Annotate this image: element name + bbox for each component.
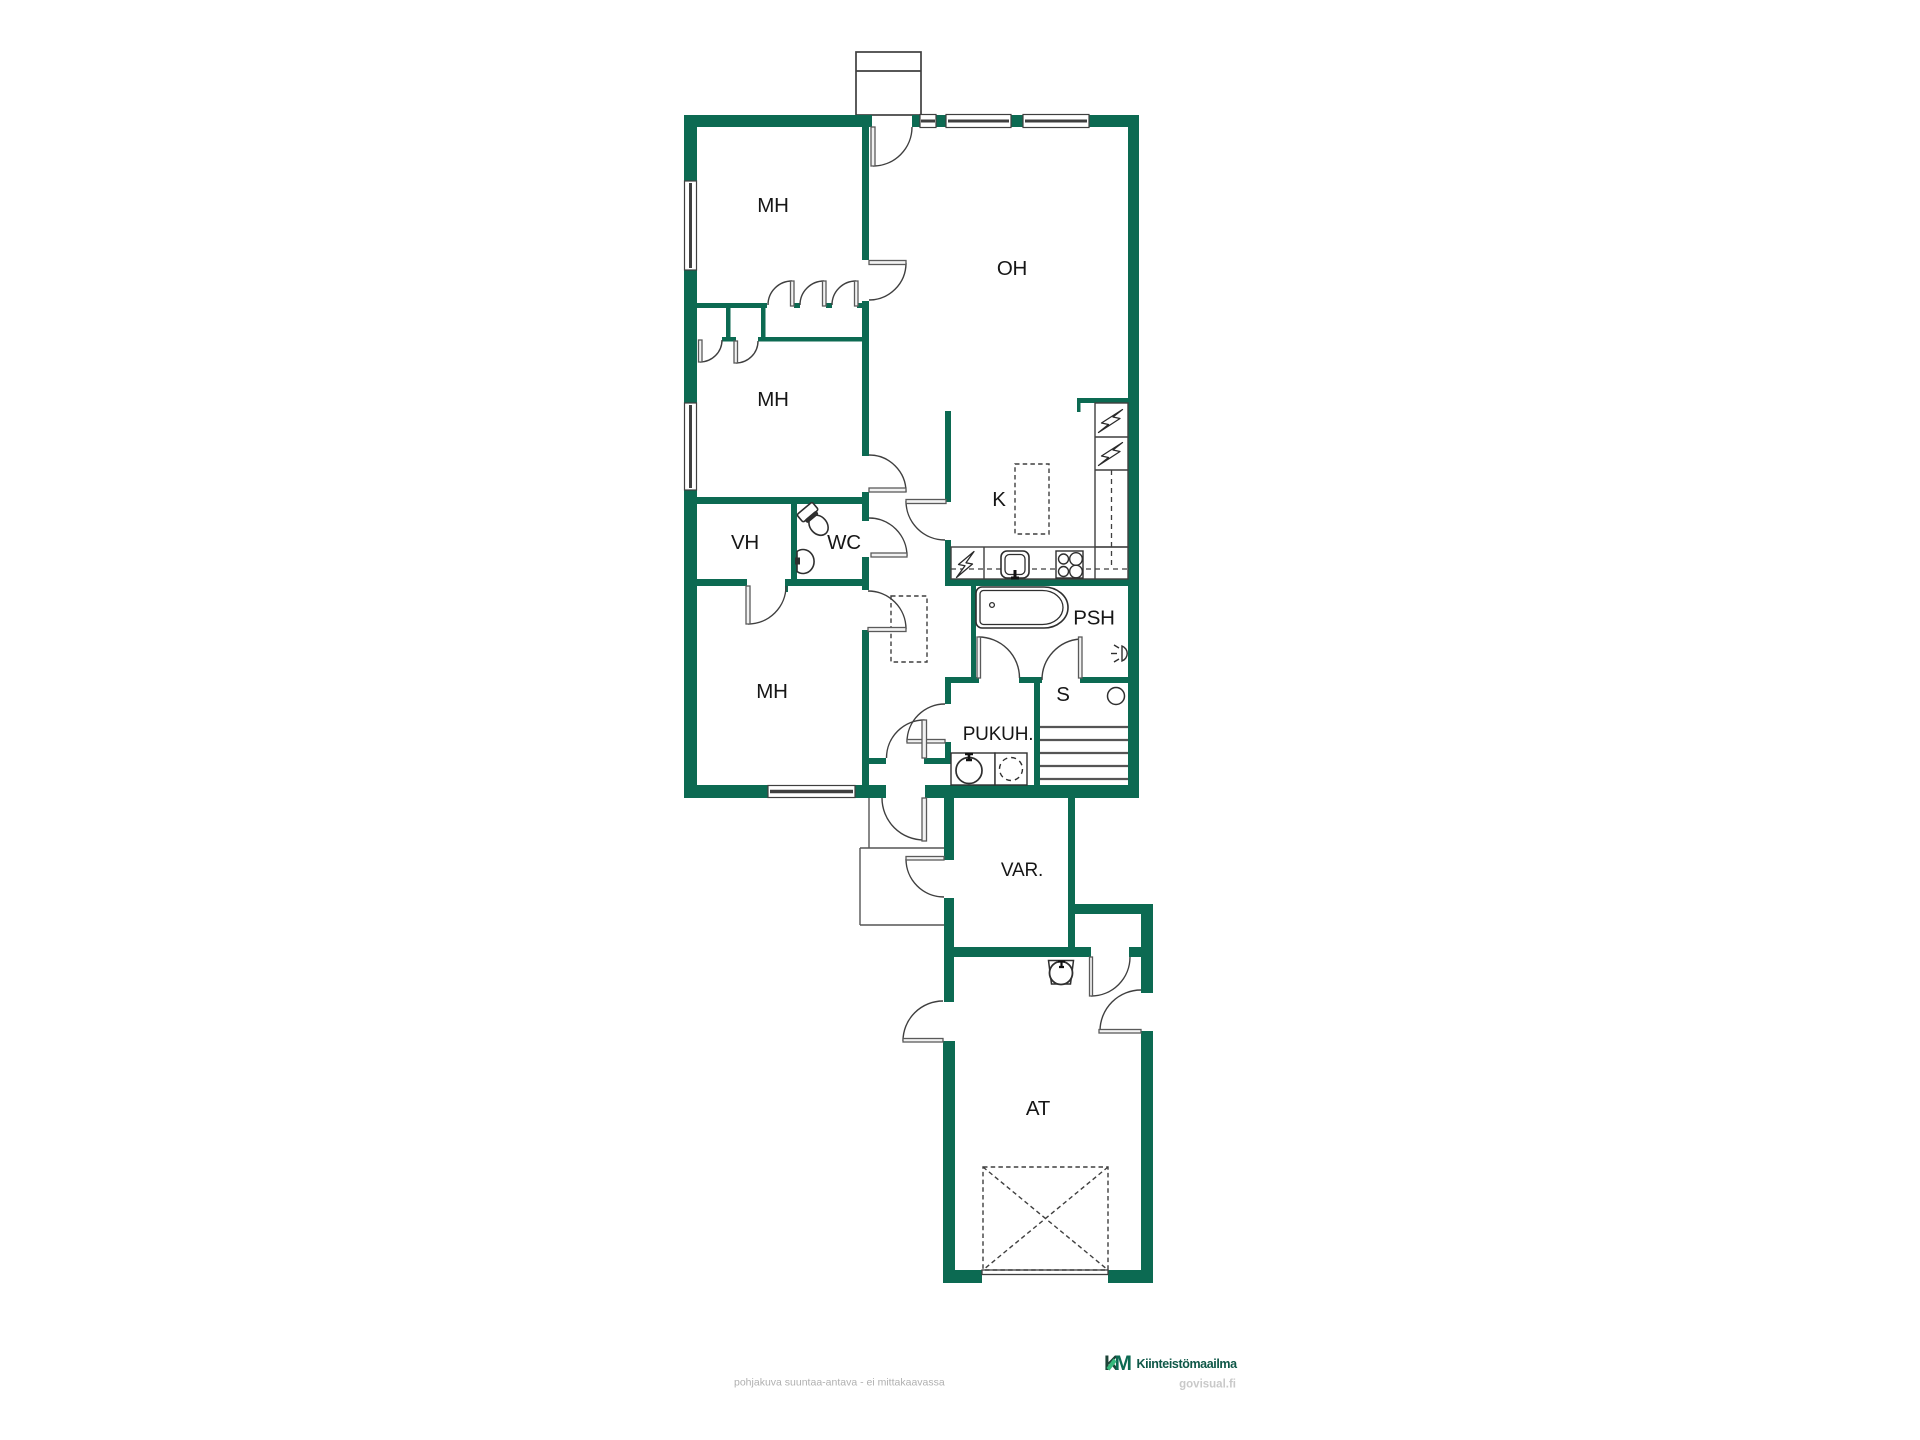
svg-text:govisual.fi: govisual.fi [1179, 1379, 1236, 1391]
svg-text:VH: VH [731, 531, 759, 554]
svg-text:PSH: PSH [1073, 607, 1115, 630]
svg-text:K: K [992, 488, 1006, 511]
svg-text:M: M [1115, 1352, 1133, 1375]
svg-text:MH: MH [757, 388, 788, 411]
svg-text:AT: AT [1026, 1097, 1051, 1120]
svg-text:VAR.: VAR. [1001, 860, 1043, 881]
svg-text:MH: MH [757, 194, 788, 217]
svg-text:WC: WC [827, 531, 861, 554]
svg-text:pohjakuva suuntaa-antava - ei: pohjakuva suuntaa-antava - ei mittakaava… [734, 1377, 945, 1389]
svg-text:PUKUH.: PUKUH. [963, 724, 1034, 745]
svg-text:MH: MH [756, 680, 787, 703]
svg-text:S: S [1056, 683, 1069, 706]
svg-text:Kiinteistömaailma: Kiinteistömaailma [1137, 1357, 1239, 1371]
svg-text:OH: OH [997, 257, 1027, 280]
